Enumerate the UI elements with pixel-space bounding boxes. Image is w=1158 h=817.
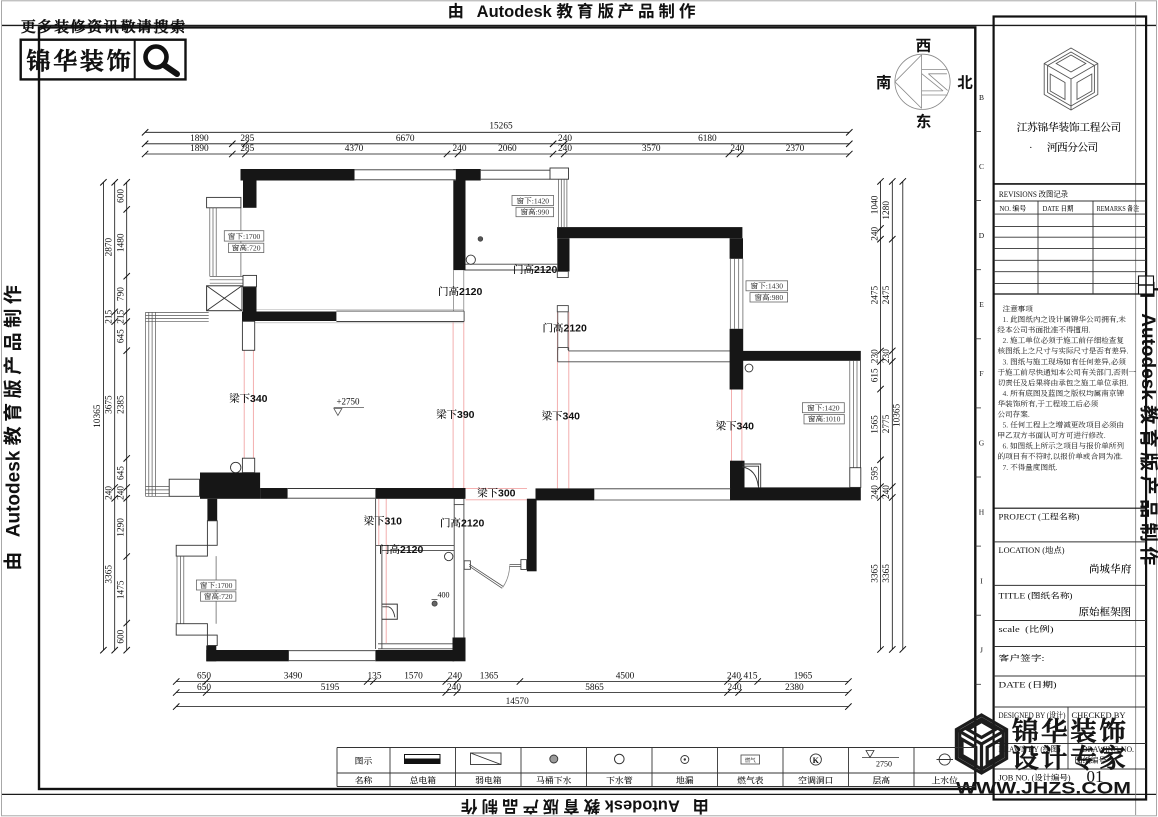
svg-text:燃气: 燃气 (745, 756, 757, 764)
svg-text:K: K (813, 756, 820, 765)
svg-text:230: 230 (870, 349, 880, 363)
svg-text:5195: 5195 (321, 683, 340, 693)
svg-text:6. 如图纸上所示之项目与报价单所列: 6. 如图纸上所示之项目与报价单所列 (1003, 441, 1125, 452)
svg-text:790: 790 (117, 287, 127, 301)
svg-text:REVISIONS 改图记录: REVISIONS 改图记录 (999, 189, 1068, 200)
svg-text:240: 240 (105, 486, 115, 500)
svg-text:南: 南 (876, 71, 892, 93)
svg-text:1. 此图纸内之设计属锦华公司拥有,未: 1. 此图纸内之设计属锦华公司拥有,未 (1003, 314, 1127, 325)
svg-text:1890: 1890 (190, 144, 209, 154)
svg-text:4370: 4370 (345, 144, 364, 154)
svg-text:J: J (980, 646, 983, 655)
svg-text:5. 任何工程上之增减更改项目必须由: 5. 任何工程上之增减更改项目必须由 (1003, 420, 1125, 431)
svg-text:东: 东 (916, 110, 932, 132)
svg-text:2370: 2370 (786, 144, 805, 154)
svg-text:scale (比例): scale (比例) (999, 624, 1054, 635)
svg-text:地漏: 地漏 (676, 773, 694, 786)
svg-text:2475: 2475 (882, 285, 892, 304)
svg-text:窗高:990: 窗高:990 (520, 207, 549, 218)
svg-text:2380: 2380 (785, 683, 804, 693)
svg-text:窗下:1430: 窗下:1430 (751, 281, 784, 292)
svg-text:下水管: 下水管 (606, 773, 633, 786)
svg-text:1480: 1480 (117, 233, 127, 252)
svg-text:NO. 编号: NO. 编号 (1000, 203, 1027, 214)
svg-text:由 Autodesk 教育版产品制作: 由 Autodesk 教育版产品制作 (457, 795, 708, 817)
svg-text:240: 240 (558, 134, 572, 144)
svg-text:窗下:1420: 窗下:1420 (517, 195, 550, 206)
svg-text:285: 285 (240, 144, 254, 154)
svg-text:1475: 1475 (117, 580, 127, 599)
svg-text:梁下300: 梁下300 (477, 486, 516, 501)
svg-text:615: 615 (870, 368, 880, 382)
svg-text:梁下390: 梁下390 (436, 407, 475, 422)
svg-text:总电箱: 总电箱 (410, 773, 437, 786)
svg-text:于施工前尽快通知本公司有关部门,否则一: 于施工前尽快通知本公司有关部门,否则一 (998, 367, 1137, 378)
svg-text:名称: 名称 (355, 773, 373, 786)
svg-text:240: 240 (117, 486, 127, 500)
svg-text:1890: 1890 (190, 134, 209, 144)
svg-text:650: 650 (197, 683, 211, 693)
svg-text:梁下310: 梁下310 (364, 514, 403, 529)
svg-text:经本公司书面批准不得擅用.: 经本公司书面批准不得擅用. (997, 325, 1091, 336)
svg-text:1965: 1965 (794, 672, 813, 682)
svg-text:2. 施工单位必须于施工前仔细检查复: 2. 施工单位必须于施工前仔细检查复 (1003, 335, 1125, 346)
svg-text:G: G (979, 438, 985, 447)
svg-text:1290: 1290 (117, 518, 127, 537)
svg-text:645: 645 (117, 329, 127, 343)
svg-text:DATE (日期): DATE (日期) (999, 680, 1057, 691)
svg-text:江苏锦华装饰工程公司: 江苏锦华装饰工程公司 (1017, 120, 1122, 135)
svg-text:窗下:1700: 窗下:1700 (200, 580, 233, 591)
svg-text:梁下340: 梁下340 (229, 391, 268, 406)
svg-text:窗高:1010: 窗高:1010 (808, 414, 841, 425)
svg-text:6670: 6670 (396, 134, 415, 144)
svg-text:2775: 2775 (882, 414, 892, 433)
svg-text:5865: 5865 (585, 683, 604, 693)
svg-text:3. 图纸与施工现场如有任何差异,必须: 3. 图纸与施工现场如有任何差异,必须 (1003, 356, 1127, 367)
svg-text:285: 285 (240, 134, 254, 144)
svg-text:240: 240 (727, 672, 741, 682)
svg-text:1040: 1040 (870, 195, 880, 214)
svg-text:2060: 2060 (498, 144, 517, 154)
svg-text:2870: 2870 (105, 237, 115, 256)
svg-text:240: 240 (453, 144, 467, 154)
svg-text:河西分公司: 河西分公司 (1047, 140, 1099, 155)
svg-text:7. 不得量度图纸.: 7. 不得量度图纸. (1003, 462, 1058, 473)
svg-text:240: 240 (448, 672, 462, 682)
svg-text:马桶下水: 马桶下水 (536, 773, 571, 786)
svg-text:西: 西 (916, 34, 932, 56)
svg-text:PROJECT (工程名称): PROJECT (工程名称) (999, 512, 1080, 523)
svg-text:F: F (979, 369, 983, 378)
svg-text:2750: 2750 (876, 760, 892, 769)
svg-text:240: 240 (870, 485, 880, 499)
svg-text:230: 230 (882, 349, 892, 363)
svg-text:10365: 10365 (93, 404, 103, 428)
svg-text:215: 215 (117, 309, 127, 323)
svg-text:4500: 4500 (616, 672, 635, 682)
svg-text:D: D (979, 231, 985, 240)
svg-text:415: 415 (744, 672, 758, 682)
svg-text:B: B (979, 93, 984, 102)
svg-text:C: C (979, 162, 984, 171)
svg-text:645: 645 (117, 466, 127, 480)
svg-text:门高2120: 门高2120 (513, 262, 558, 277)
svg-text:原始框架图: 原始框架图 (1079, 605, 1132, 620)
svg-text:6180: 6180 (698, 134, 717, 144)
svg-text:窗高:720: 窗高:720 (204, 591, 233, 602)
svg-text:REMARKS 备注: REMARKS 备注 (1097, 203, 1140, 214)
svg-text:1280: 1280 (882, 201, 892, 220)
svg-text:层高: 层高 (871, 773, 890, 786)
svg-text:由 Autodesk 教育版产品制作: 由 Autodesk 教育版产品制作 (0, 281, 25, 571)
svg-text:窗高:980: 窗高:980 (754, 292, 783, 303)
svg-text:240: 240 (447, 683, 461, 693)
svg-text:1365: 1365 (480, 672, 499, 682)
svg-text:窗下:1420: 窗下:1420 (807, 403, 840, 414)
svg-text:14570: 14570 (506, 697, 530, 707)
svg-text:595: 595 (870, 466, 880, 480)
svg-text:135: 135 (368, 672, 382, 682)
svg-text:TITLE (图纸名称): TITLE (图纸名称) (999, 591, 1073, 602)
svg-text:1565: 1565 (870, 415, 880, 434)
svg-text:弱电箱: 弱电箱 (475, 773, 502, 786)
svg-text:650: 650 (197, 672, 211, 682)
svg-text:锦华装饰: 锦华装饰 (26, 42, 134, 77)
svg-text:400: 400 (438, 591, 450, 600)
svg-text:公司存案.: 公司存案. (998, 409, 1030, 420)
svg-text:2475: 2475 (870, 285, 880, 304)
svg-text:215: 215 (105, 309, 115, 323)
svg-text:240: 240 (870, 226, 880, 240)
svg-text:窗下:1700: 窗下:1700 (228, 231, 261, 242)
svg-text:上水位: 上水位 (931, 773, 958, 786)
svg-text:·: · (1029, 140, 1033, 155)
svg-text:4. 所有底图及蓝图之版权均属南京锦: 4. 所有底图及蓝图之版权均属南京锦 (1003, 388, 1125, 399)
svg-text:门高2120: 门高2120 (438, 284, 483, 299)
svg-text:600: 600 (117, 629, 127, 643)
svg-text:10365: 10365 (893, 403, 903, 427)
svg-text:由 Autodesk 教育版产品制作: 由 Autodesk 教育版产品制作 (448, 0, 699, 22)
svg-text:尚城华府: 尚城华府 (1089, 562, 1131, 577)
svg-text:3365: 3365 (870, 564, 880, 583)
svg-text:240: 240 (558, 144, 572, 154)
svg-text:图示: 图示 (355, 754, 373, 767)
svg-text:H: H (979, 507, 985, 516)
svg-text:甲乙双方书面认可方可进行修改.: 甲乙双方书面认可方可进行修改. (998, 430, 1106, 441)
svg-text:2385: 2385 (117, 395, 127, 414)
svg-text:240: 240 (728, 683, 742, 693)
svg-text:核图纸上之尺寸与实际尺寸是否有差异.: 核图纸上之尺寸与实际尺寸是否有差异. (998, 346, 1129, 357)
svg-text:华装饰所有,于工程竣工后必须: 华装饰所有,于工程竣工后必须 (998, 398, 1099, 409)
svg-text:北: 北 (957, 71, 973, 93)
svg-text:梁下340: 梁下340 (716, 419, 755, 434)
svg-text:注意事项: 注意事项 (1003, 304, 1034, 315)
svg-text:+2750: +2750 (336, 397, 360, 407)
svg-text:门高2120: 门高2120 (379, 542, 424, 557)
svg-text:窗高:720: 窗高:720 (232, 242, 261, 253)
svg-text:设计专家: 设计专家 (1012, 737, 1128, 776)
svg-text:240: 240 (730, 144, 744, 154)
svg-text:门高2120: 门高2120 (543, 321, 588, 336)
svg-text:3675: 3675 (105, 395, 115, 414)
svg-text:DATE 日期: DATE 日期 (1043, 203, 1075, 214)
svg-text:WWW.JHZS.COM: WWW.JHZS.COM (956, 780, 1131, 798)
svg-text:燃气表: 燃气表 (737, 773, 763, 786)
svg-text:客户签字:: 客户签字: (999, 652, 1045, 664)
svg-text:600: 600 (117, 189, 127, 203)
svg-text:3365: 3365 (105, 565, 115, 584)
svg-text:1570: 1570 (404, 672, 423, 682)
svg-text:空调洞口: 空调洞口 (798, 773, 833, 786)
svg-text:切责任及后果将由承包之施工单位承担.: 切责任及后果将由承包之施工单位承担. (998, 377, 1129, 388)
svg-text:3490: 3490 (284, 672, 303, 682)
svg-text:15265: 15265 (489, 122, 513, 132)
svg-text:3365: 3365 (882, 564, 892, 583)
svg-text:的项目有不符时,以报价单或合同为准.: 的项目有不符时,以报价单或合同为准. (998, 451, 1123, 462)
svg-text:梁下340: 梁下340 (542, 409, 581, 424)
svg-text:240: 240 (882, 485, 892, 499)
svg-text:3570: 3570 (642, 144, 661, 154)
svg-text:LOCATION (地点): LOCATION (地点) (999, 545, 1065, 556)
svg-text:E: E (979, 300, 984, 309)
svg-text:门高2120: 门高2120 (440, 516, 485, 531)
